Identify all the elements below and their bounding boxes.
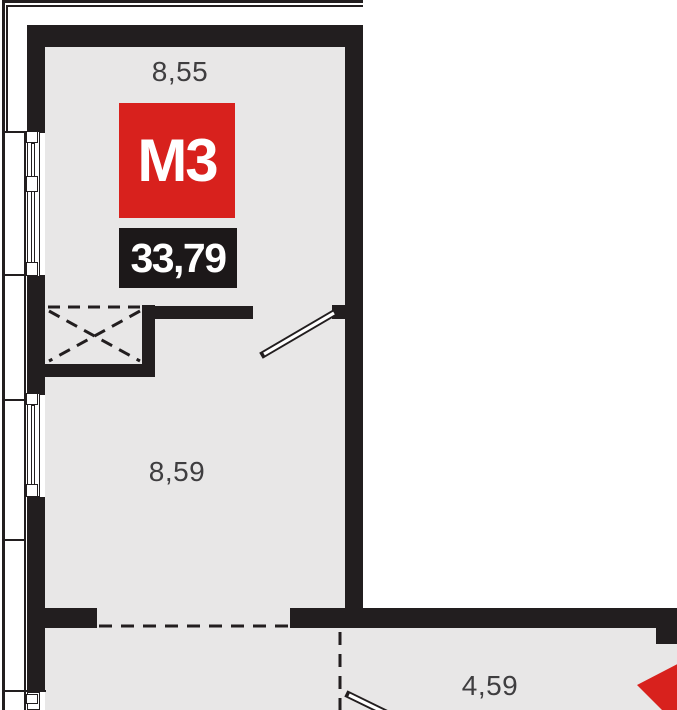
dimension-bottom-right: 4,59 [440,670,540,702]
floor-plan: 8,55 М3 33,79 8,59 4,59 [0,0,677,710]
area-badge: 33,79 [119,228,237,288]
door-swing-upper-inner [264,313,334,354]
unit-badge[interactable]: М3 [119,103,235,218]
entrance-arrow-icon [637,645,677,710]
dimension-top: 8,55 [130,56,230,88]
shaft-cross-icon [49,311,140,361]
dimension-middle: 8,59 [127,456,227,488]
plan-overlay [0,0,677,710]
